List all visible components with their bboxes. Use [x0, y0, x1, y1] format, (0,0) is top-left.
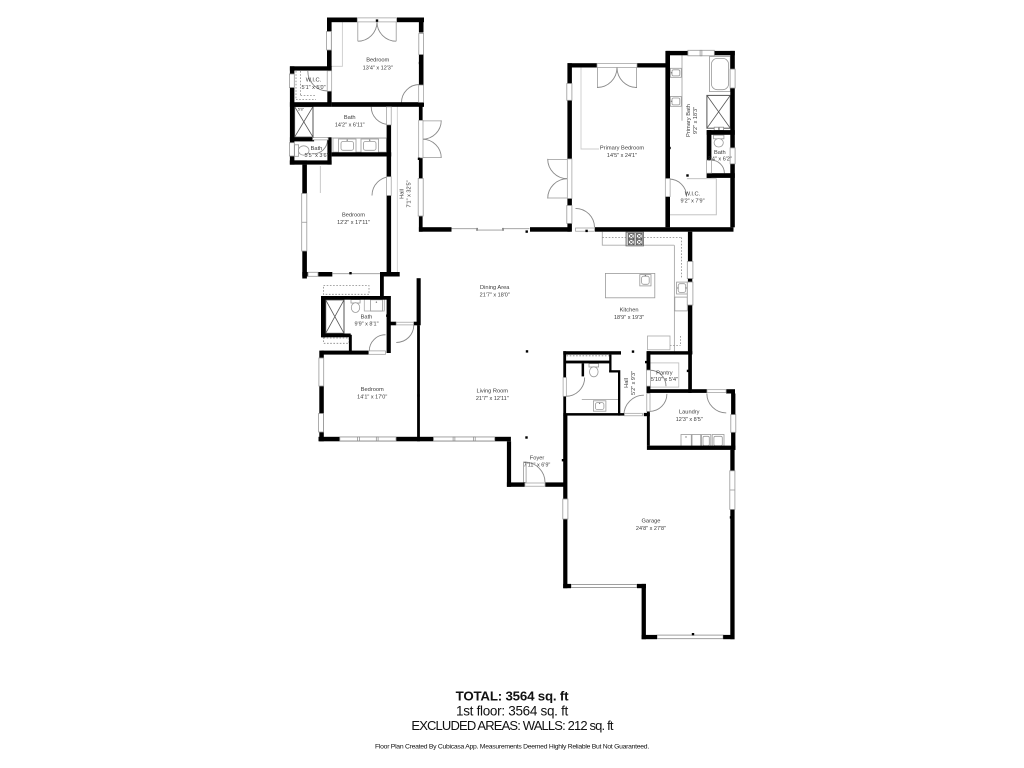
svg-text:Primary Bath: Primary Bath [686, 104, 692, 137]
svg-text:Garage: Garage [642, 518, 661, 524]
svg-text:Bath: Bath [311, 146, 323, 152]
svg-text:7'1" x 32'5": 7'1" x 32'5" [407, 180, 413, 207]
svg-text:Hall: Hall [624, 378, 630, 388]
svg-text:12'2" x 17'11": 12'2" x 17'11" [337, 220, 370, 226]
svg-text:5'5" x 3'6": 5'5" x 3'6" [304, 153, 328, 159]
svg-text:5'2" x 9'3": 5'2" x 9'3" [631, 371, 637, 395]
svg-text:9'9" x 8'1": 9'9" x 8'1" [354, 322, 378, 328]
svg-text:Floor Plan Created By Cubicasa: Floor Plan Created By Cubicasa App. Meas… [375, 744, 649, 751]
svg-text:12'3" x 8'5": 12'3" x 8'5" [676, 417, 703, 423]
svg-text:Foyer: Foyer [530, 455, 545, 461]
svg-text:W.I.C.: W.I.C. [685, 191, 701, 197]
svg-text:Bath: Bath [361, 314, 373, 320]
svg-text:Bath: Bath [344, 115, 356, 121]
svg-text:Hall: Hall [400, 189, 406, 199]
svg-text:24'8" x 27'8": 24'8" x 27'8" [636, 526, 666, 532]
svg-text:18'9" x 19'3": 18'9" x 19'3" [614, 315, 644, 321]
svg-text:21'7" x 12'11": 21'7" x 12'11" [476, 396, 509, 402]
svg-text:Primary Bedroom: Primary Bedroom [600, 145, 645, 151]
svg-text:5'1" x 5'0": 5'1" x 5'0" [301, 85, 325, 91]
svg-text:W.I.C.: W.I.C. [306, 78, 322, 84]
svg-text:5'8": 5'8" [298, 108, 305, 112]
svg-text:Kitchen: Kitchen [620, 307, 639, 313]
svg-text:21'7" x 18'0": 21'7" x 18'0" [480, 292, 510, 298]
svg-text:Pantry: Pantry [656, 370, 673, 376]
svg-text:3'4" x 6'2": 3'4" x 6'2" [708, 156, 732, 162]
svg-text:Living Room: Living Room [476, 388, 508, 394]
svg-text:Bedroom: Bedroom [366, 58, 389, 64]
svg-text:Dining Area: Dining Area [480, 285, 510, 291]
svg-text:14'5" x 24'1": 14'5" x 24'1" [607, 153, 637, 159]
svg-text:9'2" x 7'9": 9'2" x 7'9" [680, 199, 704, 205]
svg-text:14'2" x 6'11": 14'2" x 6'11" [335, 122, 365, 128]
svg-text:1st floor: 3564 sq. ft: 1st floor: 3564 sq. ft [456, 703, 569, 718]
svg-text:Bedroom: Bedroom [342, 212, 365, 218]
svg-text:5'10" x 5'4": 5'10" x 5'4" [651, 377, 678, 383]
svg-text:13'4" x 12'3": 13'4" x 12'3" [363, 65, 393, 71]
svg-text:Bedroom: Bedroom [361, 387, 384, 393]
svg-text:TOTAL: 3564 sq. ft: TOTAL: 3564 sq. ft [456, 689, 569, 704]
svg-text:EXCLUDED AREAS: WALLS: 212 sq.: EXCLUDED AREAS: WALLS: 212 sq. ft [411, 718, 613, 733]
svg-text:7'11" x 6'9": 7'11" x 6'9" [524, 463, 551, 469]
svg-text:14'1" x 17'0": 14'1" x 17'0" [357, 394, 387, 400]
svg-text:9'2" x 18'3": 9'2" x 18'3" [693, 107, 699, 134]
svg-text:Laundry: Laundry [679, 409, 700, 415]
svg-text:Bath: Bath [714, 150, 726, 156]
